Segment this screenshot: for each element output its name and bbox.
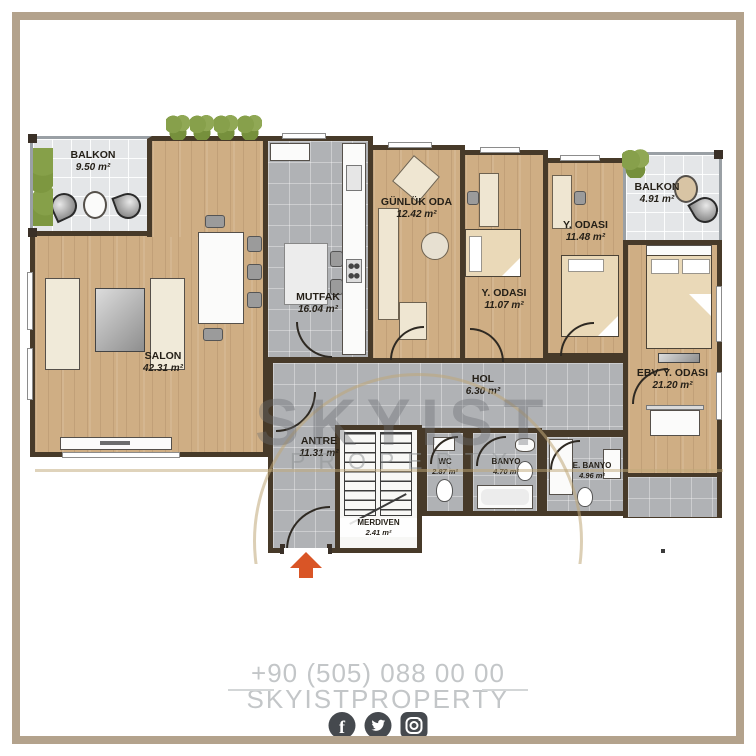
window [716, 286, 722, 342]
side-table [421, 232, 449, 260]
room-label: Y. ODASI [465, 287, 543, 300]
toilet [517, 461, 533, 481]
kitchen-chair [330, 279, 343, 295]
footer-divider-right [482, 689, 528, 691]
window [282, 133, 326, 139]
brand-name: SKYISTPROPERTY [0, 684, 756, 715]
instagram-icon[interactable] [401, 712, 428, 739]
instagram-dot [419, 719, 421, 721]
ebv-window-ledge [628, 473, 717, 517]
room-area: 11.07 m² [465, 300, 543, 312]
stairs-flight [344, 432, 376, 516]
floor-plan-canvas: SALON 42.31 m² ANTRE 11.31 m² HOL 6.30 m… [0, 0, 756, 756]
bathtub [477, 485, 533, 509]
room-merdiven: MERDIVEN 2.41 m² [335, 425, 422, 553]
tree-plant [190, 114, 214, 140]
dining-chair [247, 292, 262, 308]
bed-bench [658, 353, 700, 363]
sofa [378, 208, 399, 320]
room-label: EBV. Y. ODASI [628, 367, 717, 380]
window [480, 147, 520, 153]
window [716, 372, 722, 420]
room-salon-dining [147, 136, 268, 237]
room-salon: SALON 42.31 m² [30, 232, 268, 457]
sofa [150, 278, 185, 370]
room-area: 6.30 m² [438, 386, 528, 398]
sink [603, 449, 621, 479]
balcony-chair [111, 189, 144, 222]
social-icons [329, 712, 428, 739]
window [27, 348, 33, 400]
single-bed [465, 229, 521, 277]
room-hol: HOL 6.30 m² [420, 358, 628, 435]
footer-divider-left [228, 689, 274, 691]
tree-plant [214, 114, 238, 140]
desk [552, 175, 572, 229]
balcony-post [28, 134, 37, 143]
room-label: HOL [438, 373, 528, 386]
dining-chair [203, 328, 223, 341]
room-area: 9.50 m² [43, 162, 143, 174]
dining-chair [205, 215, 225, 228]
window [62, 452, 180, 458]
dining-table [198, 232, 244, 324]
kitchen-chair [330, 251, 343, 267]
dining-chair [247, 236, 262, 252]
double-bed [646, 255, 712, 349]
kitchen-sink [346, 165, 362, 191]
kitchen-stove [346, 259, 362, 283]
dresser [650, 410, 700, 436]
balcony-plant [33, 148, 53, 226]
room-ebv-y-odasi: EBV. Y. ODASI 21.20 m² [623, 240, 722, 518]
room-label: BALKON [43, 149, 143, 162]
facebook-icon[interactable] [329, 712, 356, 739]
desk-chair [467, 191, 479, 205]
room-area: 2.87 m² [427, 467, 463, 476]
instagram-lens [410, 721, 419, 730]
window [560, 155, 600, 161]
balcony-post [714, 150, 723, 159]
dining-chair [247, 264, 262, 280]
balcony-table [674, 175, 698, 203]
kitchen-table [284, 243, 328, 305]
window [27, 272, 33, 330]
desk [479, 173, 499, 227]
toilet [436, 479, 453, 502]
window [388, 142, 432, 148]
coffee-table [95, 288, 145, 352]
sink [515, 438, 535, 452]
entrance-arrow [290, 552, 322, 568]
room-area: 11.48 m² [548, 232, 623, 244]
toilet [577, 487, 593, 507]
room-e-banyo: E. BANYO 4.96 m² [542, 432, 628, 516]
tree-plant [166, 114, 190, 140]
armchair [392, 155, 440, 203]
balcony-plant [622, 148, 649, 178]
room-area: 2.41 m² [340, 528, 417, 537]
tree-plant [238, 114, 262, 140]
tv-unit-handle [100, 441, 130, 445]
desk-chair [574, 191, 586, 205]
twitter-icon[interactable] [365, 712, 392, 739]
entrance-arrow-stem [299, 567, 313, 578]
plan-dot [661, 549, 665, 553]
kitchen-counter-top [270, 143, 310, 161]
sofa [45, 278, 80, 370]
balcony-post [28, 228, 37, 237]
twitter-bird [371, 718, 386, 733]
balcony-table [83, 191, 107, 219]
